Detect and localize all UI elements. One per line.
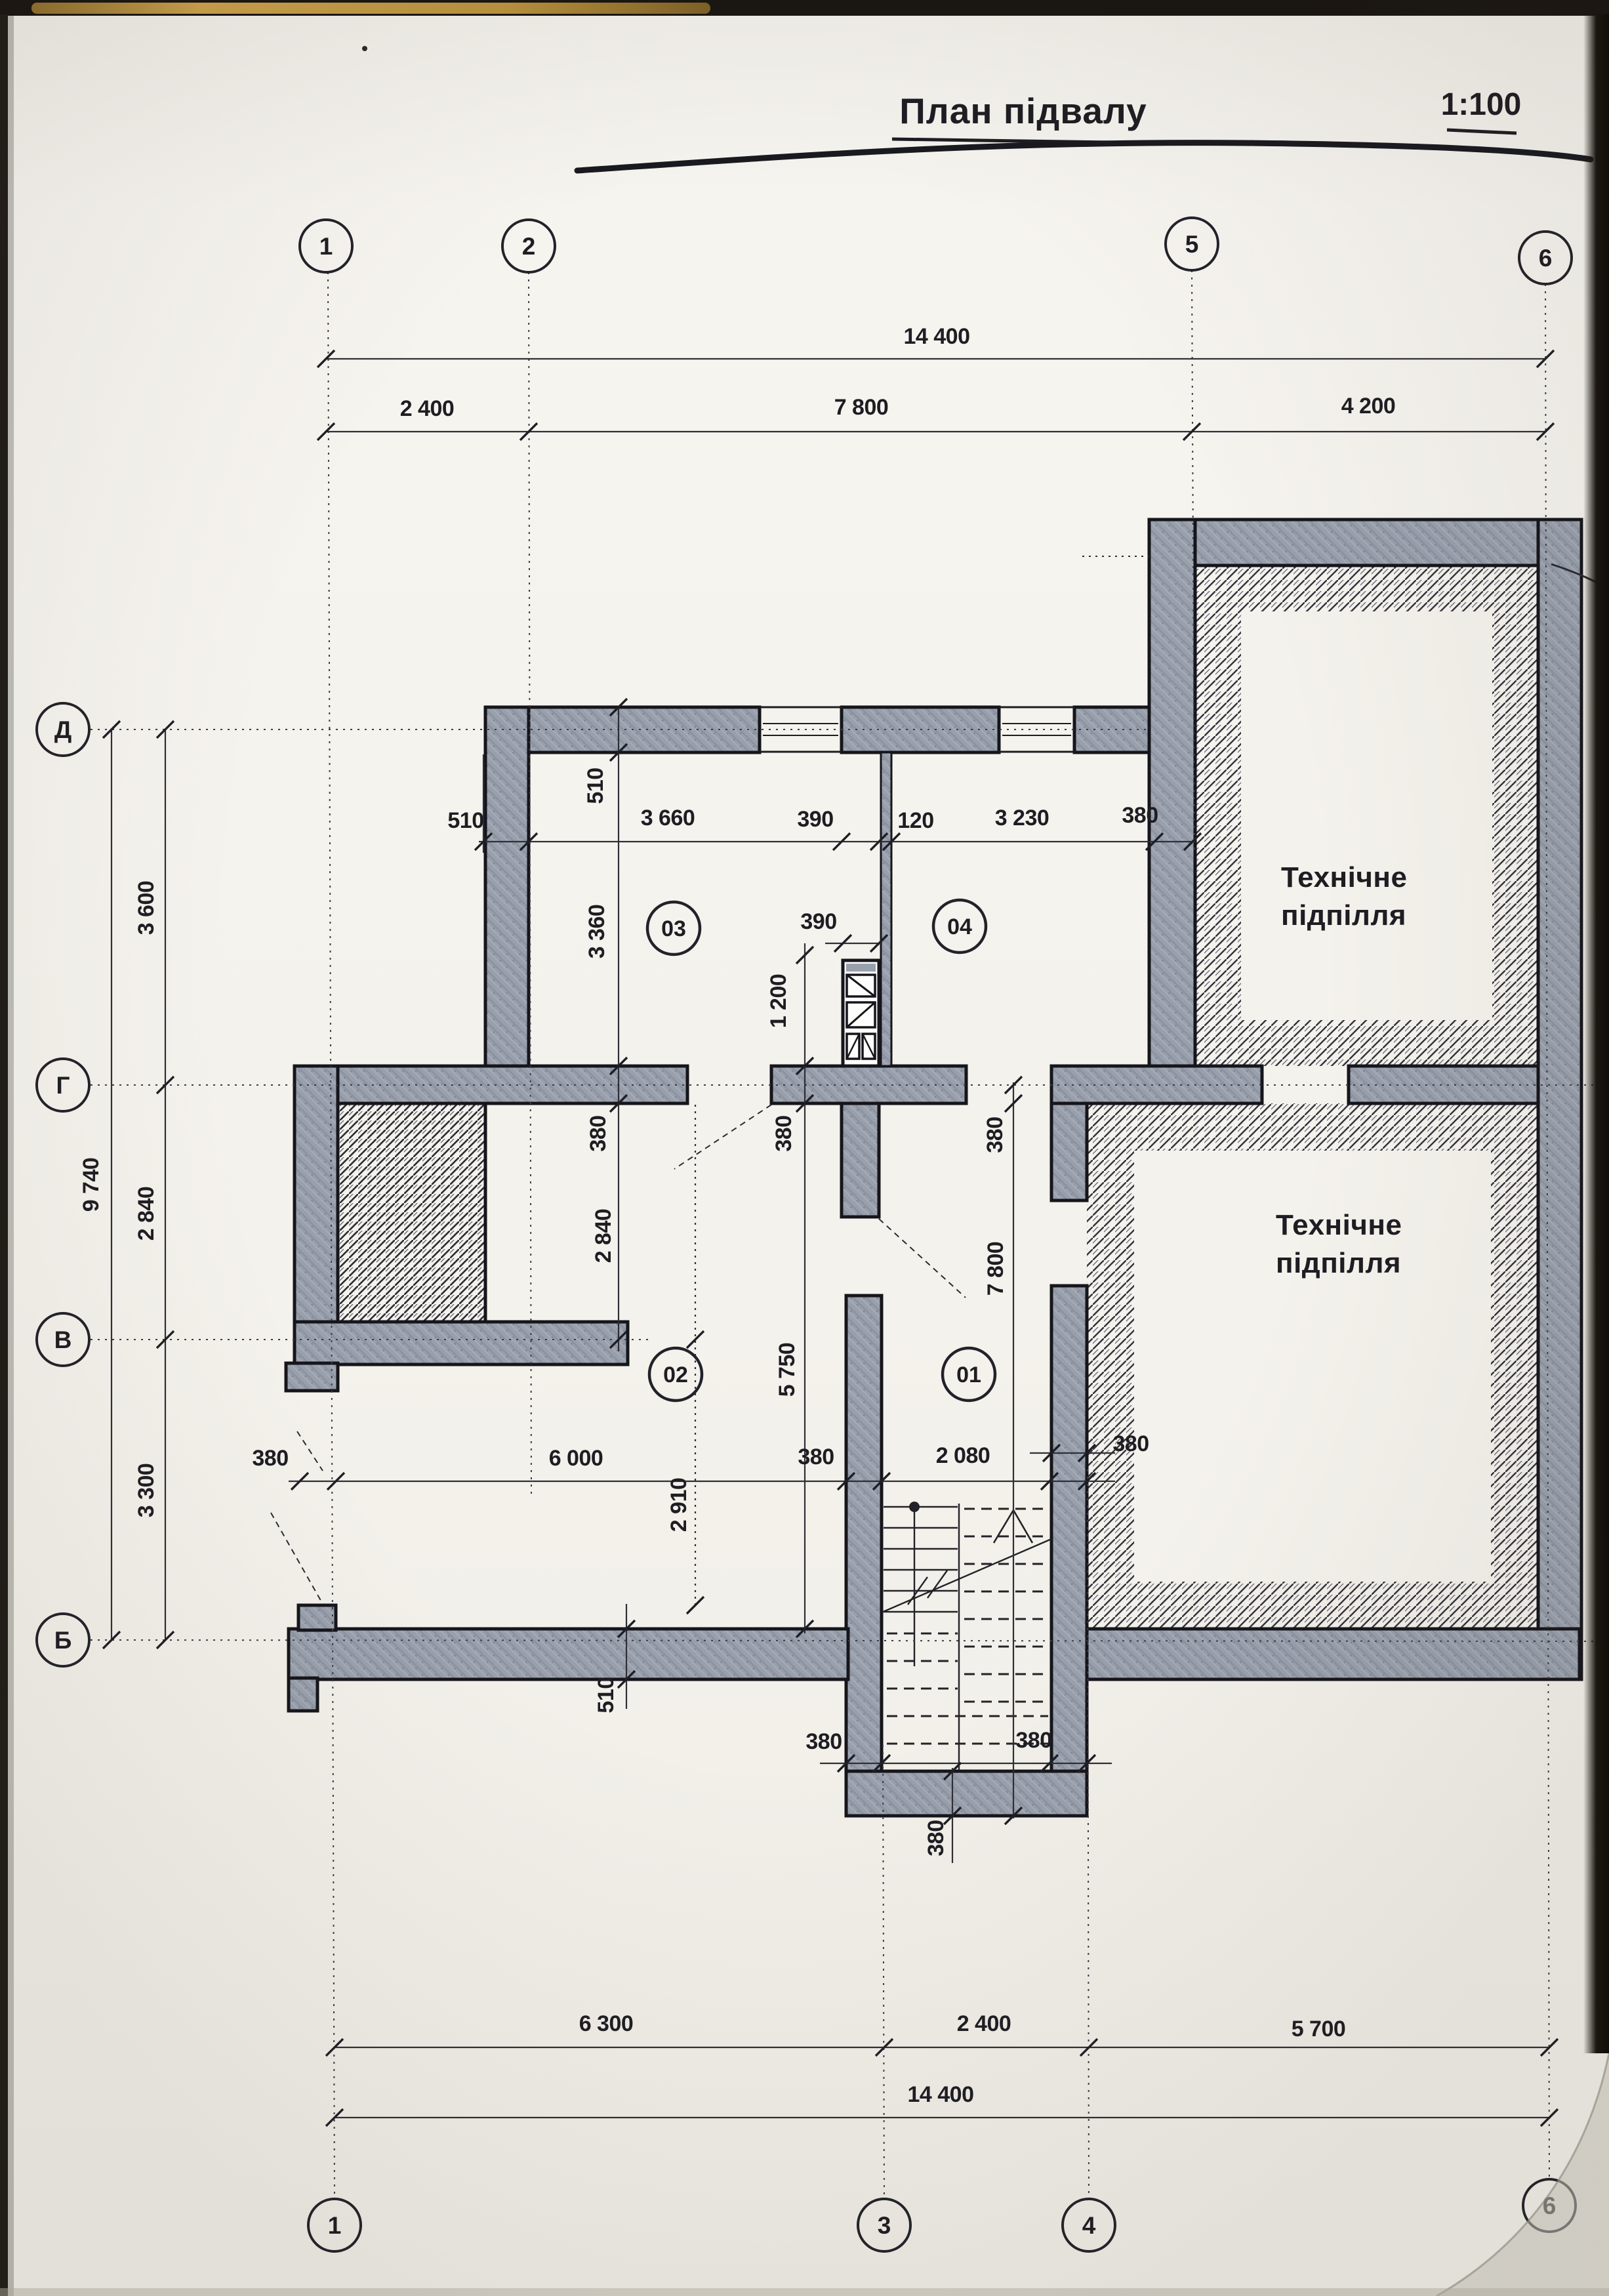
page-title: План підвалу — [899, 91, 1147, 131]
dim-label-5700: 5 700 — [1292, 2017, 1346, 2041]
dim-label-2400: 2 400 — [400, 396, 455, 421]
dim-label-380: 380 — [586, 1115, 611, 1151]
leader-t-pier — [879, 1219, 966, 1298]
room-number-04: 04 — [947, 914, 972, 939]
wall-stair-east-lower — [1051, 1286, 1087, 1816]
scan-edge-bottom — [0, 2288, 1609, 2296]
dim-label-380: 380 — [805, 1729, 842, 1754]
wall-b-step-bottom — [289, 1678, 317, 1711]
room-bubble-03: 03 — [647, 902, 700, 954]
leader-left-pier-1 — [297, 1431, 323, 1471]
dim-label-3660: 3 660 — [641, 806, 695, 830]
axis-top-6: 6 — [1519, 232, 1572, 284]
dim-label-120: 120 — [897, 808, 933, 833]
axis-label-Д: Д — [54, 716, 71, 743]
room-number-02: 02 — [663, 1363, 688, 1387]
axis-label-2: 2 — [522, 233, 536, 260]
dim-label-380: 380 — [1122, 803, 1158, 828]
axis-label-3: 3 — [878, 2212, 891, 2239]
axis-left-Б: Б — [37, 1614, 89, 1666]
dim-label-510: 510 — [594, 1677, 619, 1713]
vent-shaft — [843, 960, 879, 1066]
axis-label-1: 1 — [319, 233, 333, 260]
wall-axis-b-east — [1087, 1629, 1579, 1679]
axis-label-В: В — [54, 1326, 72, 1353]
dim-label-6300: 6 300 — [579, 2011, 634, 2036]
wall-north-top — [1149, 520, 1581, 565]
axis-bottom-1: 1 — [308, 2199, 361, 2251]
dim-label-4200: 4 200 — [1341, 394, 1396, 419]
wall-axis-2 — [485, 707, 529, 1103]
scanned-basement-plan: { "title": { "text": "План підвалу", "sc… — [0, 0, 1609, 2296]
wall-partition-120 — [881, 752, 891, 1066]
dim-label-510: 510 — [583, 768, 608, 804]
wall-outer-east — [1538, 520, 1581, 1679]
dim-label-9740: 9 740 — [79, 1158, 104, 1212]
room-bubble-01: 01 — [943, 1348, 995, 1401]
wall-left-block-south — [295, 1322, 628, 1364]
leader-g-opening — [674, 1105, 771, 1169]
axis-left-В: В — [37, 1313, 89, 1366]
dim-label-7800: 7 800 — [834, 395, 889, 420]
plan-canvas: 12561346ДГВБ 03040201 14 4002 4007 8004 … — [0, 0, 1609, 2296]
wall-axis-d-west — [529, 707, 760, 752]
axis-top-5: 5 — [1166, 218, 1218, 270]
axis-label-Г: Г — [56, 1072, 70, 1099]
dim-label-1200: 1 200 — [766, 974, 791, 1029]
wall-axis-g-east-2 — [1349, 1066, 1538, 1103]
dim-label-2080: 2 080 — [936, 1443, 990, 1468]
dim-label-380: 380 — [1112, 1431, 1149, 1456]
room-bubble-02: 02 — [649, 1348, 702, 1401]
left-block-hatched-pit — [338, 1103, 485, 1322]
axis-label-1: 1 — [328, 2212, 342, 2239]
room-number-bubbles: 03040201 — [647, 900, 995, 1401]
room-number-01: 01 — [956, 1363, 981, 1387]
dim-label-3600: 3 600 — [134, 881, 159, 935]
stair-break-line — [882, 1539, 1051, 1612]
vent-shaft-cap — [846, 964, 876, 972]
wall-left-block-pier — [286, 1363, 338, 1391]
dim-label-2400: 2 400 — [957, 2011, 1011, 2036]
wall-axis-b-west — [289, 1629, 848, 1679]
dim-label-3300: 3 300 — [134, 1464, 159, 1518]
dim-label-2840: 2 840 — [591, 1209, 616, 1263]
dim-label-380: 380 — [1015, 1728, 1051, 1753]
wall-axis-g-west — [295, 1066, 687, 1103]
axis-top-1: 1 — [300, 220, 352, 272]
wall-stair-south — [846, 1771, 1087, 1816]
wall-stair-west — [846, 1296, 882, 1816]
axis-bottom-3: 3 — [858, 2199, 910, 2251]
scan-speck — [362, 46, 367, 51]
dim-label-2840: 2 840 — [134, 1187, 159, 1241]
axis-label-6: 6 — [1539, 245, 1553, 272]
dim-label-380: 380 — [798, 1445, 834, 1469]
title-block: План підвалу 1:100 — [577, 87, 1591, 171]
dim-label-390: 390 — [797, 807, 833, 832]
dim-label-390: 390 — [800, 909, 836, 934]
dim-label-6000: 6 000 — [549, 1446, 603, 1471]
leader-left-pier-2 — [271, 1513, 323, 1604]
title-separator-swoosh — [577, 143, 1591, 171]
axis-label-Б: Б — [54, 1627, 72, 1654]
scale-underline — [1447, 130, 1517, 133]
dim-label-510: 510 — [447, 808, 483, 833]
axis-top-2: 2 — [502, 220, 555, 272]
wall-axis-g-east-1 — [1051, 1066, 1262, 1103]
room-number-03: 03 — [661, 916, 686, 941]
axis-left-Д: Д — [37, 703, 89, 756]
dim-label-7800: 7 800 — [983, 1242, 1008, 1296]
stair-treads-dashed — [887, 1509, 1048, 1744]
scan-tan-strip — [31, 3, 710, 14]
dim-label-380: 380 — [924, 1820, 948, 1856]
stair-walk-start-dot — [909, 1502, 920, 1512]
dim-label-380: 380 — [983, 1117, 1008, 1153]
axis-label-5: 5 — [1185, 231, 1199, 258]
axis-bottom-4: 4 — [1063, 2199, 1115, 2251]
upper-tech-room-inner — [1241, 611, 1492, 1020]
scan-edge-right — [1583, 14, 1609, 2053]
room-bubble-04: 04 — [933, 900, 986, 953]
dim-label-2910: 2 910 — [666, 1478, 691, 1532]
dim-label-380: 380 — [771, 1115, 796, 1151]
dim-label-380: 380 — [252, 1446, 288, 1471]
scale-label: 1:100 — [1441, 87, 1522, 122]
dim-label-5750: 5 750 — [775, 1343, 800, 1397]
axis-label-4: 4 — [1082, 2212, 1096, 2239]
wall-t-pier — [842, 1103, 879, 1217]
dim-label-3230: 3 230 — [995, 806, 1049, 830]
scan-edge-left — [0, 14, 8, 2296]
drawing-sheet: 12561346ДГВБ 03040201 14 4002 4007 8004 … — [0, 0, 1609, 2296]
scan-edge-left-fade — [8, 14, 14, 2296]
axis-left-Г: Г — [37, 1059, 89, 1111]
dim-label-14400: 14 400 — [908, 2082, 974, 2107]
dim-label-14400: 14 400 — [904, 324, 970, 349]
dim-label-3360: 3 360 — [584, 905, 609, 959]
wall-b-step-top — [298, 1605, 336, 1630]
wall-stair-east-upper — [1051, 1103, 1087, 1200]
scan-corner-curl — [1436, 2053, 1609, 2296]
